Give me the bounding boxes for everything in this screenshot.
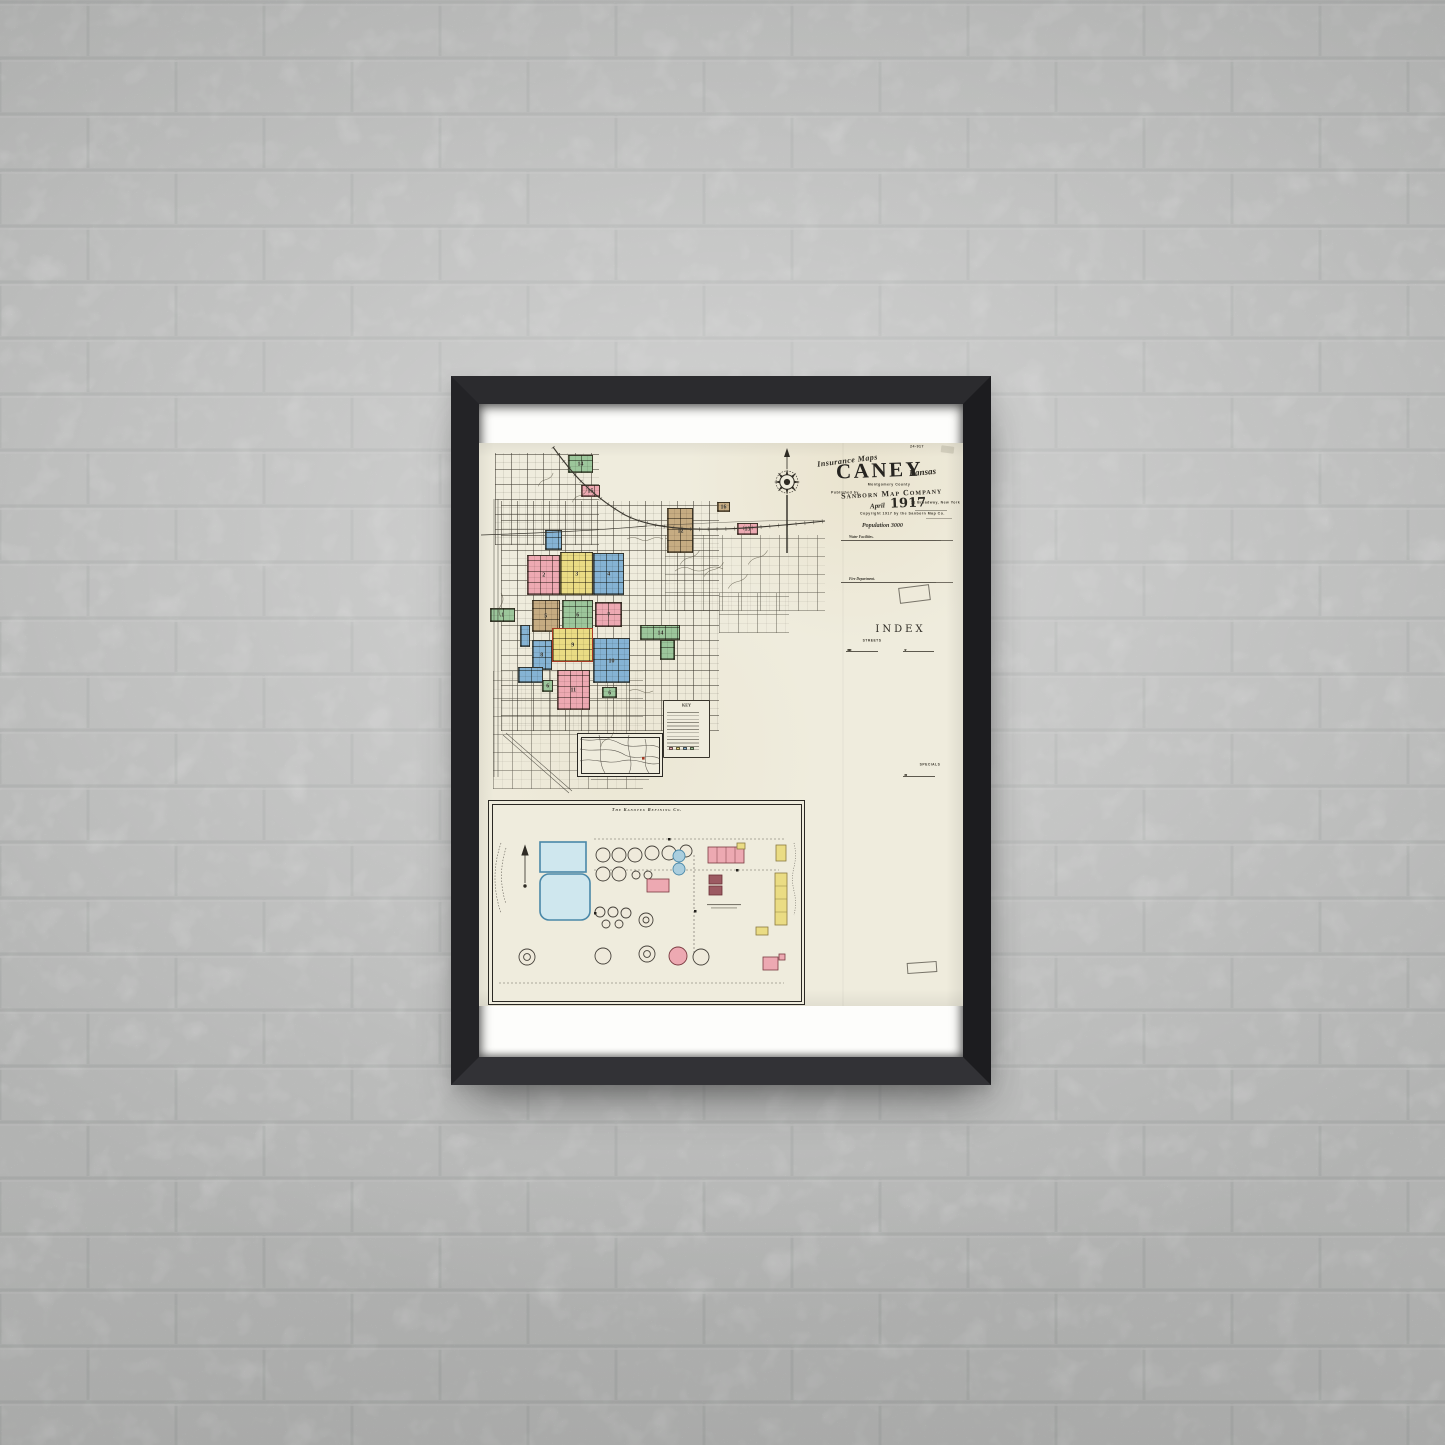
index-specials-heading: SPECIALS — [918, 763, 942, 766]
plate-number: 24-917 — [902, 445, 932, 449]
sheet-block-blue-c — [518, 667, 543, 683]
sheet-block-6a: 6 — [542, 680, 553, 692]
sheet-block-6: 6 — [562, 600, 593, 630]
corner-stamp-blot — [941, 445, 955, 454]
sheet-block-14: 14 — [568, 455, 593, 473]
date-month: April — [870, 501, 885, 510]
water-facilities-heading: Water Facilities. — [849, 535, 874, 539]
key-chip-pink — [669, 747, 673, 750]
sheet-block-green-a — [660, 640, 675, 660]
sheet-block-1: 1 — [490, 608, 515, 622]
sheet-block-10: 10 — [593, 638, 630, 683]
key-chip-green — [690, 747, 694, 750]
map-sheet: 14 15 16 12 13 2 3 4 5 6 7 1 9 8 10 14 1… — [479, 443, 963, 1006]
sheet-block-12: 12 — [667, 508, 693, 553]
sheet-block-16: 16 — [717, 502, 730, 512]
poster: 14 15 16 12 13 2 3 4 5 6 7 1 9 8 10 14 1… — [479, 404, 963, 1057]
sheet-block-14b: 14 — [640, 625, 680, 640]
index-streets-heading: STREETS — [860, 639, 884, 642]
sheet-block-blue-b — [520, 625, 530, 647]
fire-department-heading: Fire Department. — [849, 577, 875, 581]
county-label: Montgomery County — [867, 483, 912, 487]
publisher-address: 11 Broadway, New York — [911, 501, 960, 505]
pond-label-1: Pond — [556, 855, 564, 859]
key-chip-blue — [683, 747, 687, 750]
sheet-block-7: 7 — [595, 602, 622, 627]
scale-bar-line — [915, 510, 947, 511]
state-label: Kansas — [909, 466, 937, 478]
paper-crease — [842, 443, 844, 1006]
sheet-block-blue-a — [545, 530, 562, 550]
pond-label-2: Pond — [558, 895, 566, 899]
street-grid-southeast — [719, 593, 789, 633]
key-chip-yellow — [676, 747, 680, 750]
sheet-block-9: 9 — [552, 628, 593, 662]
kanotex-inset-box — [488, 800, 805, 1005]
sheet-block-3: 3 — [560, 552, 593, 595]
key-legend-lines — [667, 712, 706, 750]
copyright-line: Copyright 1917 by the Sanborn Map Co. — [860, 512, 945, 516]
sheet-block-8: 8 — [532, 640, 552, 670]
sheet-block-15: 15 — [581, 485, 600, 497]
sheet-block-13: 13 — [737, 523, 758, 535]
regional-inset-caption — [591, 779, 649, 780]
sheet-block-11: 11 — [557, 670, 590, 710]
sheet-block-2: 2 — [527, 555, 560, 595]
kanotex-inset-title: The Kanotex Refining Co. — [603, 807, 691, 812]
scene: 14 15 16 12 13 2 3 4 5 6 7 1 9 8 10 14 1… — [0, 0, 1445, 1445]
sheet-block-4: 4 — [593, 553, 624, 595]
owner-signature-line — [926, 518, 952, 519]
index-footer-stamp — [907, 961, 938, 974]
sheet-block-6b: 6 — [602, 687, 617, 698]
index-title: INDEX — [845, 624, 956, 635]
map-key-box: KEY — [663, 700, 710, 758]
regional-inset-map — [577, 733, 663, 777]
library-receipt-stamp — [898, 584, 931, 604]
key-title: KEY — [675, 703, 698, 708]
population-note: Population 3000 — [862, 523, 903, 529]
picture-frame: 14 15 16 12 13 2 3 4 5 6 7 1 9 8 10 14 1… — [451, 376, 991, 1085]
